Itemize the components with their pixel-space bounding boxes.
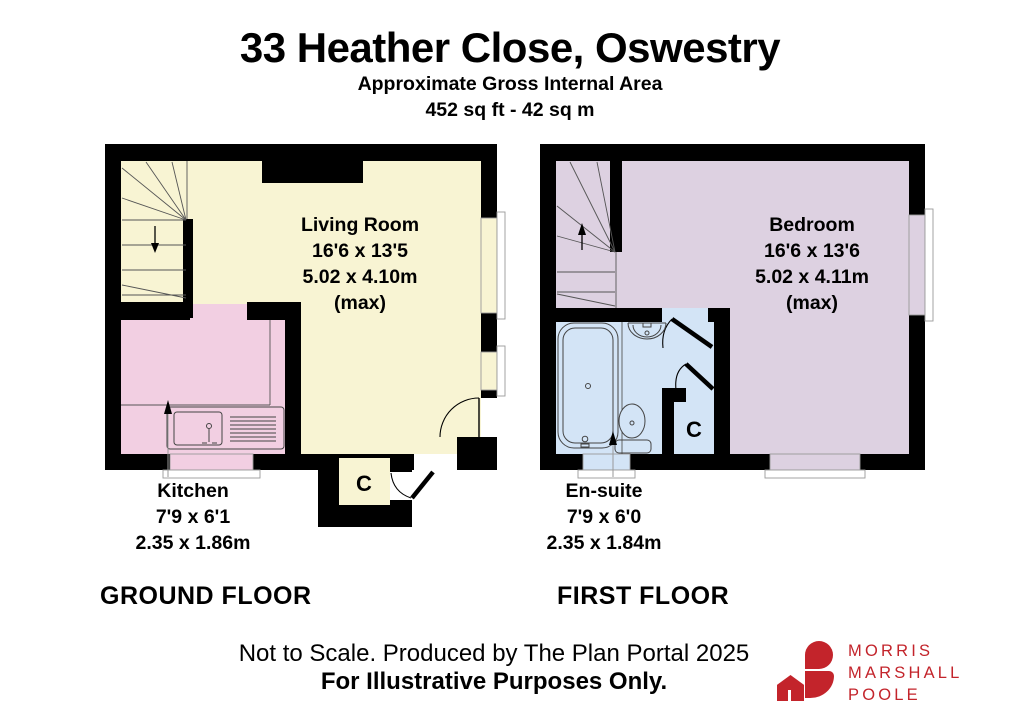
kitchen-dims-imperial: 7'9 x 6'1 — [156, 506, 230, 528]
ground-cupboard-label: C — [356, 471, 372, 496]
living-room-dims-metric: 5.02 x 4.10m — [303, 266, 418, 288]
bedroom-name: Bedroom — [769, 214, 855, 236]
window-sill — [765, 470, 865, 478]
bedroom-dims-imperial: 16'6 x 13'6 — [764, 240, 860, 262]
window-sill — [497, 212, 505, 319]
ensuite-window — [583, 454, 630, 470]
kitchen-window — [170, 454, 253, 470]
window — [481, 218, 497, 313]
living-room-dims-imperial: 16'6 x 13'5 — [312, 240, 408, 262]
ensuite-name: En-suite — [566, 480, 643, 502]
window-sill — [497, 346, 505, 396]
living-room-max-note: (max) — [334, 292, 386, 314]
ground-floor-label: GROUND FLOOR — [100, 582, 312, 610]
cupboard-door-opening — [390, 472, 412, 500]
bedroom-window — [770, 454, 860, 470]
logo-line2: MARSHALL — [848, 662, 963, 684]
ensuite-dims-metric: 2.35 x 1.84m — [547, 532, 662, 554]
window-sill — [163, 470, 260, 478]
logo-leaf-shape — [805, 671, 834, 698]
logo-line3: POOLE — [848, 684, 963, 706]
drainer-lines — [230, 417, 276, 441]
logo-house-shape — [777, 675, 804, 701]
first-floor-plan: Bedroom 16'6 x 13'6 5.02 x 4.11m (max) C… — [540, 144, 933, 610]
window-sill — [578, 470, 635, 478]
kitchen-dims-metric: 2.35 x 1.86m — [136, 532, 251, 554]
window-sill — [925, 209, 933, 321]
ensuite-door-opening — [662, 308, 708, 322]
floorplan-drawing: Living Room 16'6 x 13'5 5.02 x 4.10m (ma… — [0, 0, 1020, 720]
ensuite-dims-imperial: 7'9 x 6'0 — [567, 506, 641, 528]
first-cupboard-label: C — [686, 417, 702, 442]
logo-comma-shape — [805, 641, 833, 669]
bedroom-dims-metric: 5.02 x 4.11m — [755, 266, 869, 288]
window — [909, 215, 925, 315]
floorplan-page: 33 Heather Close, Oswestry Approximate G… — [0, 0, 1020, 720]
logo-wordmark: MORRIS MARSHALL POOLE — [848, 640, 963, 706]
agency-logo: MORRIS MARSHALL POOLE — [772, 638, 1012, 714]
window — [481, 352, 497, 390]
bedroom-max-note: (max) — [786, 292, 838, 314]
logo-line1: MORRIS — [848, 640, 963, 662]
first-floor-label: FIRST FLOOR — [557, 582, 729, 610]
kitchen-area — [121, 304, 285, 454]
living-room-name: Living Room — [301, 214, 419, 236]
ground-floor-plan: Living Room 16'6 x 13'5 5.02 x 4.10m (ma… — [100, 144, 505, 610]
house-logo-icon — [772, 638, 842, 704]
kitchen-name: Kitchen — [157, 480, 229, 502]
